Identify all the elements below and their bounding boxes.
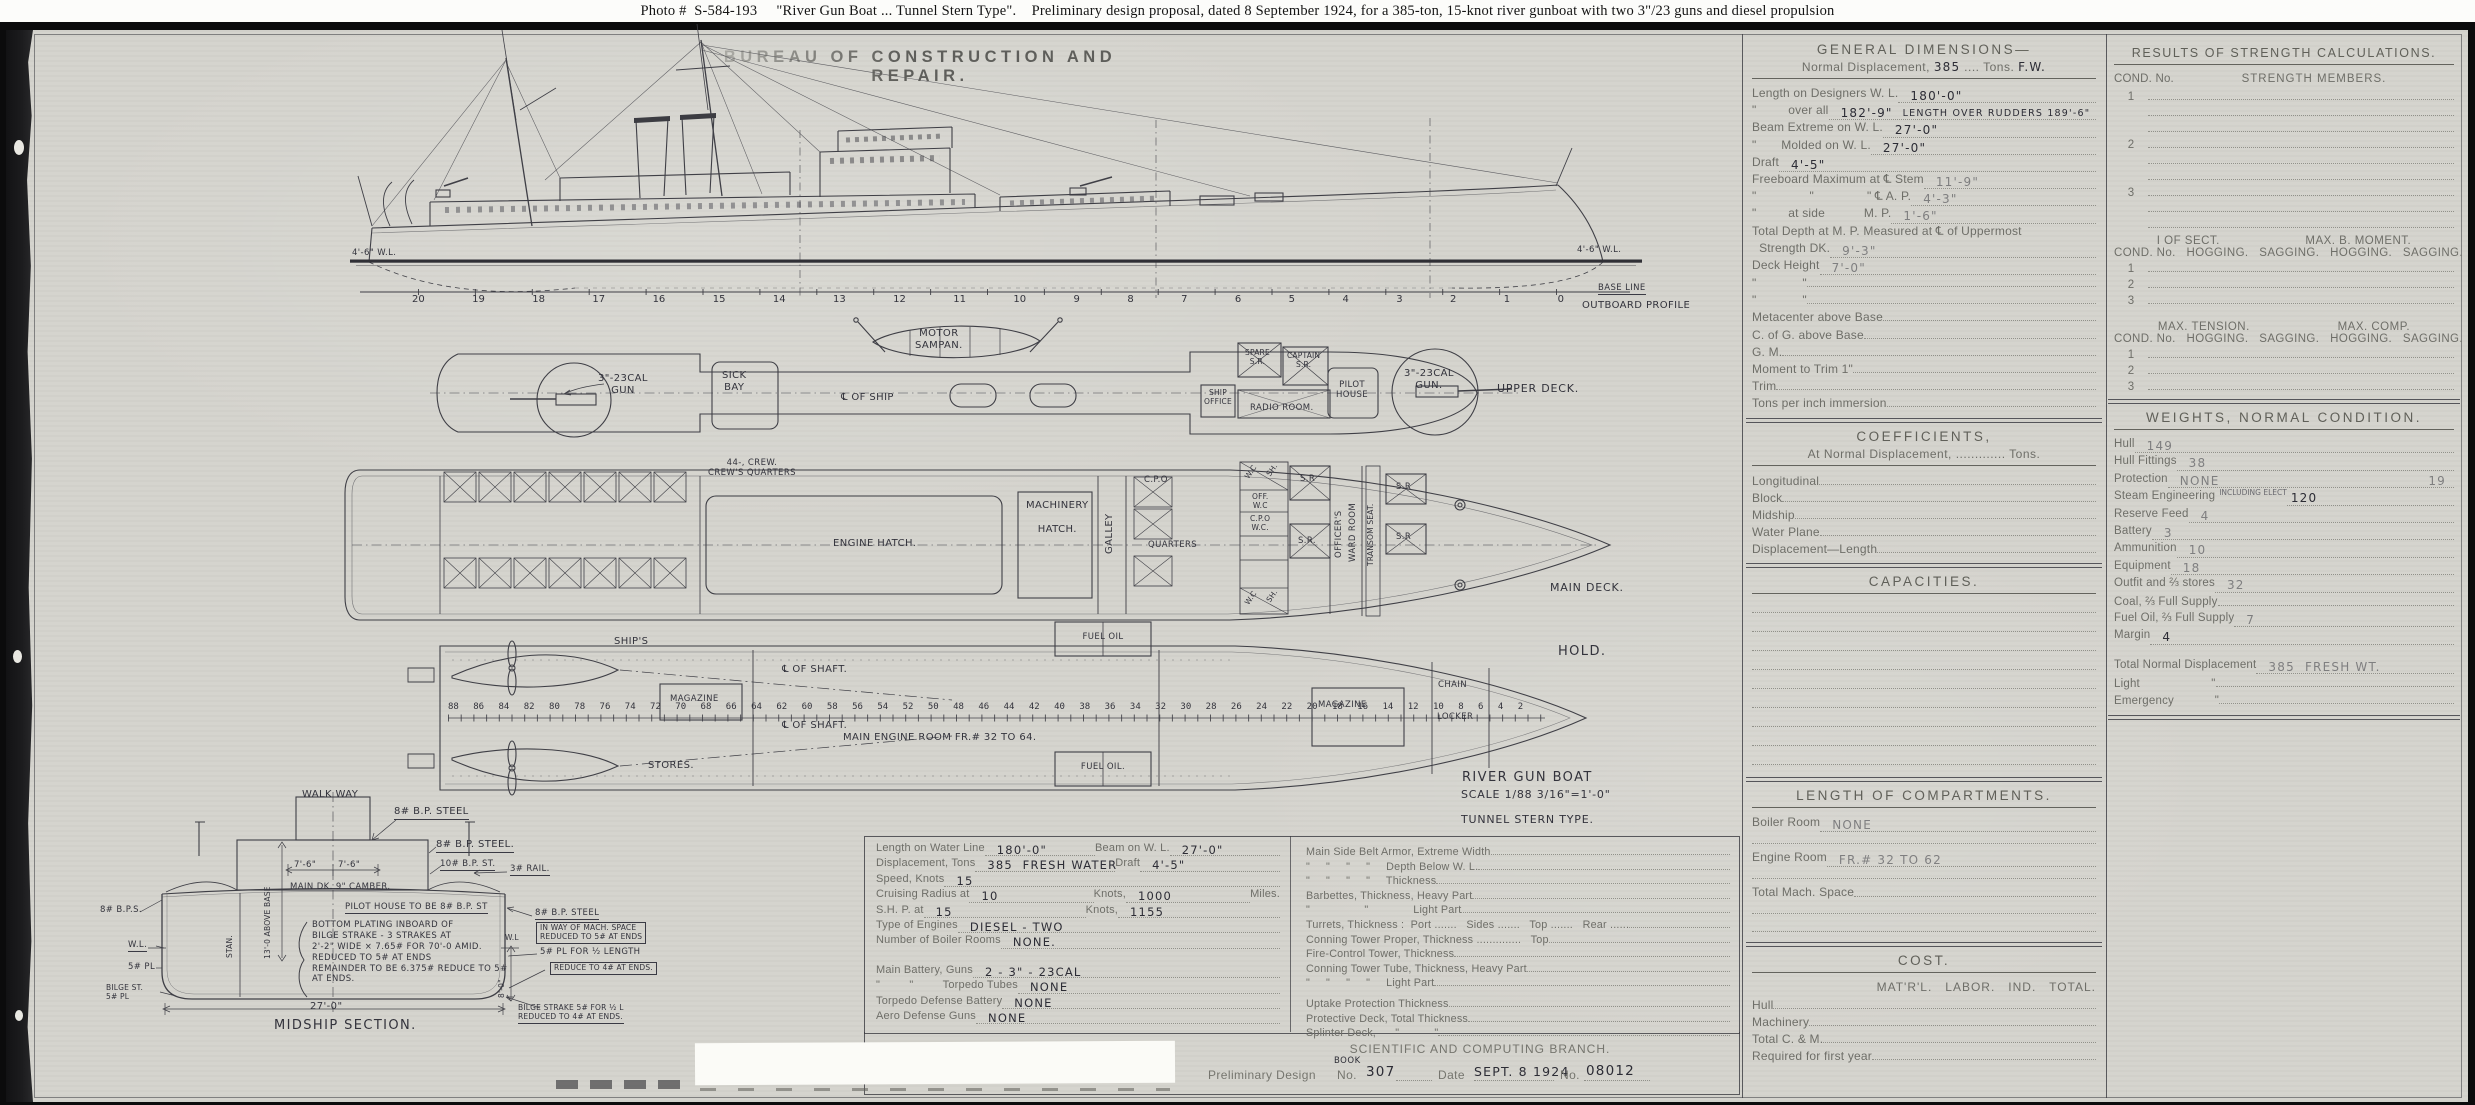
form-label: Moment to Trim 1" [1752, 361, 1853, 378]
plating-note-8lb-top: 8# B.P. STEEL [394, 806, 469, 820]
form-row [1752, 676, 2096, 695]
station-number: 18 [532, 294, 545, 305]
table-row: Displacement, Tons385 FRESH WATERDraft4'… [876, 856, 1280, 871]
field-label: Aero Defense Guns [876, 1009, 976, 1024]
field-label: Main Battery, Guns [876, 963, 973, 978]
form-label: Hull [1752, 997, 1773, 1014]
form-row: 3 [2114, 183, 2454, 199]
serial-number: 08012 [1586, 1063, 1635, 1079]
centerline-of-ship-label: ℄ OF SHIP [841, 392, 894, 404]
form-row: Outfit and ⅔ stores32 [2114, 575, 2454, 592]
form-row: C. of G. above Base [1752, 326, 2096, 343]
station-number: 0 [1558, 294, 1564, 305]
station-number: 3 [1396, 294, 1402, 305]
rule [1752, 807, 2096, 808]
plating-note-8lb-side: 8# B.P. STEEL. [436, 839, 514, 853]
galley-label: GALLEY [1104, 492, 1116, 554]
magazine-right-label: MAGAZINE [1318, 700, 1367, 710]
reduce-ends-note: REDUCE TO 4# AT ENDS. [550, 962, 657, 975]
panel-title: WEIGHTS, NORMAL CONDITION. [2114, 410, 2454, 425]
table-row: S.H. P. at15Knots,1155 [876, 903, 1280, 918]
form-value: 385 FRESH WT. [2268, 659, 2380, 676]
rule [1752, 972, 2096, 973]
form-row: Total Mach. Space [1752, 884, 2096, 902]
form-row [1752, 619, 2096, 638]
field-value: NONE [1014, 996, 1052, 1011]
field-label: Miles. [1250, 887, 1280, 902]
form-label: Draft [1752, 154, 1779, 171]
upper-deck-label: UPPER DECK. [1497, 383, 1579, 396]
rule [2114, 64, 2454, 65]
strength-header: COND. No.STRENGTH MEMBERS. [2114, 71, 2454, 87]
form-row: Hull Fittings38 [2114, 453, 2454, 470]
panel-subtitle: Normal Displacement, 385 .... Tons. F.W. [1752, 60, 2096, 74]
column-header: COND. No. [2114, 71, 2174, 87]
table-row: Barbettes, Thickness, Heavy Part [1306, 886, 1730, 901]
field-label: Beam on W. L. [1095, 841, 1170, 856]
table-row: " " " " Thickness [1306, 871, 1730, 886]
transom-seat-label: TRANSOM SEAT. [1367, 470, 1376, 566]
form-row: " " [1752, 291, 2096, 308]
strength-subheader: MAX. TENSION.MAX. COMP. [2114, 321, 2454, 333]
column-header: MAX. COMP. [2338, 321, 2411, 333]
table-row: Speed, Knots15 [876, 872, 1280, 887]
form-row: 1 [2114, 345, 2454, 361]
beam-dim-27ft: 27'-0" [310, 1001, 342, 1013]
form-value: 4'-5" [1791, 157, 1825, 174]
hold-view-label: HOLD. [1558, 644, 1606, 659]
half-length-plate-note: 5# PL FOR ½ LENGTH [540, 947, 640, 957]
design-number: 307 [1366, 1064, 1395, 1080]
station-number: 16 [653, 294, 666, 305]
dotted-line [1584, 1080, 1650, 1081]
stateroom-label: S.R. [1298, 536, 1316, 546]
form-label: Light " [2114, 676, 2216, 693]
form-label: Trim [1752, 378, 1776, 395]
strength-columns: COND. No. HOGGING. SAGGING. HOGGING. SAG… [2114, 333, 2454, 345]
field-label: Knots, [1086, 903, 1118, 918]
length-of-compartments-section: LENGTH OF COMPARTMENTS. Boiler RoomNONE … [1752, 788, 2096, 937]
form-row: Moment to Trim 1" [1752, 360, 2096, 377]
form-row: 2 [2114, 361, 2454, 377]
cost-column-headers: MAT'R'L. LABOR. IND. TOTAL. [1752, 979, 2096, 996]
stateroom-label: S.R [1300, 474, 1315, 484]
form-row: Longitudinal [1752, 472, 2096, 489]
field-label: Torpedo Defense Battery [876, 994, 1002, 1009]
form-row: 3 [2114, 377, 2454, 393]
ship-office-label: SHIP OFFICE [1204, 389, 1232, 407]
table-row: Torpedo Defense BatteryNONE [876, 994, 1280, 1009]
form-label: " over all [1752, 102, 1829, 119]
section-divider [1746, 563, 2102, 568]
form-label: Steam Engineering [2114, 488, 2215, 505]
station-number: 15 [713, 294, 726, 305]
fuel-oil-label: FUEL OIL [1057, 632, 1149, 642]
condition-number: 3 [2114, 293, 2148, 309]
field-value: 15 [956, 874, 973, 889]
form-label: Displacement—Length [1752, 541, 1877, 558]
station-number: 19 [472, 294, 485, 305]
field-value: DIESEL - TWO [970, 920, 1064, 935]
rule [2114, 429, 2454, 430]
form-row: Ammunition10 [2114, 540, 2454, 557]
plating-note-8lb-left: 8# B.P.S. [100, 905, 142, 915]
title-block-type: TUNNEL STERN TYPE. [1461, 814, 1594, 827]
stores-label: STORES. [648, 760, 694, 772]
form-row [1752, 901, 2096, 919]
bilge-strake-note-right: BILGE STRAKE 5# FOR ½ L REDUCED TO 4# AT… [518, 1004, 624, 1024]
weights-section: WEIGHTS, NORMAL CONDITION. Hull149 Hull … [2114, 410, 2454, 720]
preliminary-design-label: Preliminary Design [1208, 1068, 1316, 1082]
pilot-house-plating-note: PILOT HOUSE TO BE 8# B.P. ST [345, 902, 488, 914]
form-label: Reserve Feed [2114, 506, 2189, 523]
form-label: " at side M. P. [1752, 205, 1891, 222]
field-value: 4'-5" [1152, 858, 1185, 873]
upper-deck-plan [430, 318, 1520, 437]
chain-locker-label: CHAIN [1438, 680, 1467, 690]
section-divider [2108, 399, 2460, 404]
stateroom-label: S.R [1396, 532, 1411, 542]
form-row: Block [1752, 489, 2096, 506]
panel-subtitle: At Normal Displacement, ............. To… [1752, 447, 2096, 461]
armor-table: Main Side Belt Armor, Extreme Width " " … [1306, 842, 1730, 1038]
form-row [2114, 119, 2454, 135]
column-header: STRENGTH MEMBERS. [2242, 71, 2387, 87]
forward-gun-label: 3"-23CAL GUN. [1404, 368, 1454, 392]
section-divider [1746, 418, 2102, 423]
rule [1752, 78, 2096, 79]
main-engine-room-label: MAIN ENGINE ROOM FR.# 32 TO 64. [843, 732, 1037, 744]
form-row: Tons per inch immersion [1752, 394, 2096, 411]
form-value: 9'-3" [1842, 243, 1876, 260]
field-label: Uptake Protection Thickness [1306, 997, 1449, 1012]
field-label: Knots, [1094, 887, 1126, 902]
form-value: 1'-6" [1903, 208, 1937, 225]
half-breadth-dim: 7'-6" [294, 860, 316, 870]
station-number: 7 [1181, 294, 1187, 305]
form-label: " " " ℄ A. P. [1752, 188, 1911, 205]
form-label: " Molded on W. L. [1752, 137, 1871, 154]
chain-locker-label: LOCKER [1437, 712, 1473, 722]
condition-number: 3 [2114, 185, 2148, 201]
form-row [1752, 638, 2096, 657]
form-value: 18 [2183, 560, 2201, 577]
condition-number: 2 [2114, 363, 2148, 379]
stateroom-label: S.R [1396, 482, 1411, 492]
panel-title: COST. [1752, 953, 2096, 968]
plate-note-5lb: 5# PL [128, 962, 155, 972]
station-number: 11 [953, 294, 966, 305]
form-label: " " [1752, 292, 1807, 309]
baseline-label: BASE LINE [1598, 283, 1646, 295]
form-label: Total Normal Displacement [2114, 657, 2256, 674]
section-divider [2108, 715, 2460, 720]
redaction-box [695, 1041, 1175, 1086]
form-row: 1 [2114, 87, 2454, 103]
form-label: Total Mach. Space [1752, 884, 1854, 902]
form-row [2114, 103, 2454, 119]
waterline-label-right: 4'-6" W.L. [1577, 245, 1621, 255]
mach-space-plating-note: IN WAY OF MACH. SPACE REDUCED TO 5# AT E… [536, 922, 646, 944]
field-value: 1000 [1138, 889, 1172, 904]
rule [1752, 593, 2096, 594]
dotted-line [1474, 1080, 1554, 1081]
station-number: 17 [592, 294, 605, 305]
field-label: " " Light Part [1306, 903, 1461, 918]
form-label: Deck Height [1752, 257, 1820, 274]
field-value: 10 [981, 889, 998, 904]
subtitle-value: 385 [1934, 60, 1961, 74]
form-label: Outfit and ⅔ stores [2114, 575, 2215, 592]
side-plating-note-right: 8# B.P. STEEL [535, 908, 599, 920]
form-label: Hull [2114, 436, 2135, 453]
form-label: Metacenter above Base [1752, 309, 1883, 326]
form-label: Battery [2114, 523, 2152, 540]
form-label: G. M. [1752, 344, 1782, 361]
form-row: " Molded on W. L.27'-0" [1752, 137, 2096, 154]
form-row: 2 [2114, 135, 2454, 151]
form-row: Hull [1752, 996, 2096, 1013]
officers-label: OFFICER'S [1334, 478, 1344, 558]
characteristics-table: Length on Water Line180'-0"Beam on W. L.… [876, 841, 1280, 1024]
form-row: Metacenter above Base [1752, 308, 2096, 325]
spare-stateroom-label: SPARE S.R. [1245, 349, 1270, 367]
aft-gun-label: 3"-23CAL GUN [598, 373, 648, 397]
form-value: 3 [2164, 525, 2173, 542]
field-value: NONE. [1013, 935, 1056, 950]
station-number: 6 [1235, 294, 1241, 305]
panel-title: COEFFICIENTS, [1752, 429, 2096, 444]
station-number: 12 [893, 294, 906, 305]
form-row [2114, 215, 2454, 231]
bottom-plating-note: BOTTOM PLATING INBOARD OF BILGE STRAKE -… [312, 920, 508, 985]
waterline-label-left: 4'-6" W.L. [352, 248, 396, 258]
form-value: 149 [2147, 438, 2174, 455]
field-value: 2 - 3" - 23CAL [985, 965, 1082, 980]
form-row: Trim [1752, 377, 2096, 394]
form-label: Coal, ⅔ Full Supply [2114, 594, 2218, 611]
form-label: Equipment [2114, 558, 2171, 575]
field-value: 15 [936, 905, 953, 920]
cpo-wc-label: C.P.O W.C. [1250, 515, 1270, 533]
form-row: Boiler RoomNONE [1752, 814, 2096, 832]
title-block-scale: SCALE 1/88 3/16"=1'-0" [1461, 789, 1611, 802]
main-deck-label: MAIN DECK. [1550, 582, 1624, 595]
field-label: Barbettes, Thickness, Heavy Part [1306, 889, 1472, 904]
date-value: SEPT. 8 1924 [1474, 1064, 1570, 1079]
field-label: Cruising Radius at [876, 887, 969, 902]
form-row: Coal, ⅔ Full Supply [2114, 593, 2454, 610]
field-label: Speed, Knots [876, 872, 944, 887]
panel-title: GENERAL DIMENSIONS— [1752, 42, 2096, 57]
form-row [2114, 199, 2454, 215]
field-value: 385 FRESH WATER [987, 858, 1117, 873]
form-row [2114, 151, 2454, 167]
form-row [1752, 831, 2096, 849]
subtitle-label: Tons. [1983, 60, 2014, 74]
bureau-title: BUREAU OF CONSTRUCTION AND REPAIR. [700, 48, 1140, 86]
sick-bay-label: SICK BAY [722, 370, 746, 394]
scanned-blueprint-page: Photo # S-584-193 "River Gun Boat ... Tu… [0, 0, 2475, 1105]
cpo-label: C.P.O [1144, 475, 1168, 485]
subtitle-value: F.W. [2018, 60, 2046, 74]
form-row [1752, 714, 2096, 733]
design-no-label: No. [1337, 1068, 1357, 1082]
field-value: 27'-0" [1182, 843, 1224, 858]
book-annotation: BOOK [1334, 1056, 1361, 1066]
station-number: 5 [1289, 294, 1295, 305]
condition-number: 1 [2114, 347, 2148, 363]
form-row: Hull149 [2114, 436, 2454, 453]
strength-calculations-panel: RESULTS OF STRENGTH CALCULATIONS. COND. … [2114, 46, 2454, 726]
field-label: Draft [1115, 856, 1140, 871]
subtitle-label: Normal Displacement, [1802, 60, 1930, 74]
form-label: C. of G. above Base [1752, 327, 1864, 344]
rail-note: 3# RAIL. [510, 864, 550, 876]
title-block-name: RIVER GUN BOAT [1462, 770, 1593, 785]
table-row: Cruising Radius at10Knots,1000Miles. [876, 887, 1280, 902]
form-value: 7 [2246, 612, 2255, 629]
form-label: Required for first year [1752, 1048, 1872, 1065]
form-label: Water Plane [1752, 524, 1820, 541]
table-row: Protective Deck, Total Thickness [1306, 1009, 1730, 1024]
bilge-strake-note-left: BILGE ST. 5# PL [106, 984, 143, 1002]
condition-number: 2 [2114, 137, 2148, 153]
form-row: Total Normal Displacement385 FRESH WT. [2114, 657, 2454, 674]
form-value: 19 [2428, 473, 2454, 490]
section-divider [1746, 777, 2102, 782]
table-row: " " Torpedo TubesNONE [876, 978, 1280, 993]
form-value: 32 [2227, 577, 2245, 594]
form-label: Total C. & M. [1752, 1031, 1823, 1048]
form-row: Fuel Oil, ⅔ Full Supply7 [2114, 610, 2454, 627]
table-row: Fire-Control Tower, Thickness [1306, 944, 1730, 959]
station-number: 4 [1342, 294, 1348, 305]
rule [1752, 465, 2096, 466]
plating-note-10lb: 10# B.P. ST. [440, 859, 495, 871]
column-header: MAX. TENSION. [2158, 321, 2250, 333]
pilot-house-label: PILOT HOUSE [1336, 380, 1368, 400]
form-label: Machinery [1752, 1014, 1809, 1031]
height-above-base-dim: 13'-0 ABOVE BASE [264, 847, 273, 959]
station-number: 1 [1504, 294, 1510, 305]
form-row: " " " ℄ A. P.4'-3" [1752, 188, 2096, 205]
form-row [2114, 167, 2454, 183]
form-row: 1 [2114, 259, 2454, 275]
camber-note: MAIN DK. 9" CAMBER. [290, 882, 390, 892]
form-label: Length on Designers W. L. [1752, 85, 1898, 102]
field-value: NONE [1030, 980, 1068, 995]
form-row [1752, 657, 2096, 676]
form-label: Total Depth at M. P. Measured at ℄ of Up… [1752, 223, 2022, 240]
form-row: Required for first year [1752, 1047, 2096, 1064]
form-row [1752, 600, 2096, 619]
field-label: Displacement, Tons [876, 856, 975, 871]
waterline-mark-right: W.L [505, 934, 519, 943]
capacities-section: CAPACITIES. [1752, 574, 2096, 771]
form-row: Margin4 [2114, 627, 2454, 644]
form-label: Fuel Oil, ⅔ Full Supply [2114, 610, 2234, 627]
station-number: 8 [1127, 294, 1133, 305]
table-row: Turrets, Thickness : Port ....... Sides … [1306, 915, 1730, 930]
stamp-smudge [556, 1076, 686, 1092]
form-row: Emergency " [2114, 691, 2454, 708]
general-dimensions-panel: GENERAL DIMENSIONS— Normal Displacement,… [1752, 42, 2096, 1064]
form-value: 4 [2162, 629, 2171, 646]
form-row: Engine RoomFR.# 32 TO 62 [1752, 849, 2096, 867]
form-row: 3 [2114, 291, 2454, 307]
form-row: Length on Designers W. L.180'-0" [1752, 85, 2096, 102]
strength-subheader: I OF SECT.MAX. B. MOMENT. [2114, 235, 2454, 247]
form-row: " " [1752, 274, 2096, 291]
table-row: " " " " Depth Below W. L. [1306, 857, 1730, 872]
shaft-centerline-label: ℄ OF SHAFT. [782, 664, 847, 676]
date-label: Date [1438, 1068, 1465, 1082]
table-row: Conning Tower Proper, Thickness ........… [1306, 930, 1730, 945]
form-row: G. M. [1752, 343, 2096, 360]
form-row: Water Plane [1752, 523, 2096, 540]
form-value: 4 [2201, 508, 2210, 525]
form-row: Steam EngineeringINCLUDING ELECT120 [2114, 488, 2454, 505]
form-row [1752, 919, 2096, 937]
field-label: " " " " Thickness [1306, 874, 1436, 889]
panel-title: CAPACITIES. [1752, 574, 2096, 589]
form-value: LENGTH OVER RUDDERS 189'-6" [1893, 105, 2091, 122]
table-row: Splinter Deck, " " [1306, 1023, 1730, 1038]
form-value: 182'-9" [1841, 105, 1893, 122]
strength-columns: COND. No. HOGGING. SAGGING. HOGGING. SAG… [2114, 247, 2454, 259]
condition-number: 1 [2114, 89, 2148, 105]
form-row: Battery3 [2114, 523, 2454, 540]
form-label: Longitudinal [1752, 473, 1819, 490]
station-number: 20 [412, 294, 425, 305]
station-number: 2 [1450, 294, 1456, 305]
midship-section-caption: MIDSHIP SECTION. [274, 1018, 417, 1033]
form-value: FR.# 32 TO 62 [1839, 852, 1942, 870]
captain-stateroom-label: CAPTAIN S.R. [1287, 352, 1320, 370]
form-row: Midship [1752, 506, 2096, 523]
form-row: Equipment18 [2114, 558, 2454, 575]
form-label: Margin [2114, 627, 2150, 644]
depth-dim-8ft: 8'-0" [498, 958, 507, 998]
form-row: Displacement—Length [1752, 540, 2096, 557]
coefficients-section: COEFFICIENTS, At Normal Displacement, ..… [1752, 429, 2096, 557]
stanchion-label: STAN. [226, 928, 235, 958]
motor-sampan-label: MOTOR SAMPAN. [915, 328, 963, 352]
branch-title: SCIENTIFIC AND COMPUTING BRANCH. [1310, 1042, 1650, 1056]
form-row: Strength DK.9'-3" [1752, 240, 2096, 257]
form-label: " " [1752, 275, 1807, 292]
form-label: Boiler Room [1752, 814, 1820, 832]
main-deck-plan [345, 462, 1610, 620]
column-header: I OF SECT. [2157, 235, 2220, 247]
form-label: Hull Fittings [2114, 453, 2177, 470]
table-row: Length on Water Line180'-0"Beam on W. L.… [876, 841, 1280, 856]
form-value: 4'-3" [1923, 191, 1957, 208]
station-number: 9 [1074, 294, 1080, 305]
form-label: Engine Room [1752, 849, 1827, 867]
ships-magazine-label-1: SHIP'S [614, 636, 648, 648]
field-label: Length on Water Line [876, 841, 985, 856]
machinery-hatch-label: MACHINERY HATCH. [1026, 500, 1089, 535]
station-number: 10 [1013, 294, 1026, 305]
form-value: 27'-0" [1895, 122, 1938, 139]
profile-station-numbers: 20191817161514131211109876543210 [412, 294, 1564, 305]
table-row: " " " " Light Part [1306, 973, 1730, 988]
stamp-remnant-marks [700, 1086, 1170, 1093]
field-label: " " " " Light Part [1306, 976, 1434, 991]
radio-room-label: RADIO ROOM. [1250, 403, 1314, 413]
